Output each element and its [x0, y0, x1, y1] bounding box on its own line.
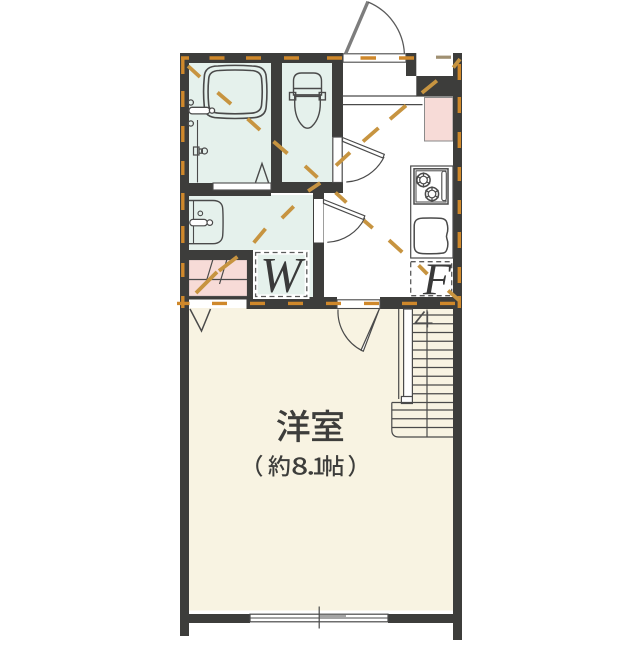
svg-text:F: F	[422, 254, 452, 305]
svg-text:W: W	[260, 247, 306, 303]
